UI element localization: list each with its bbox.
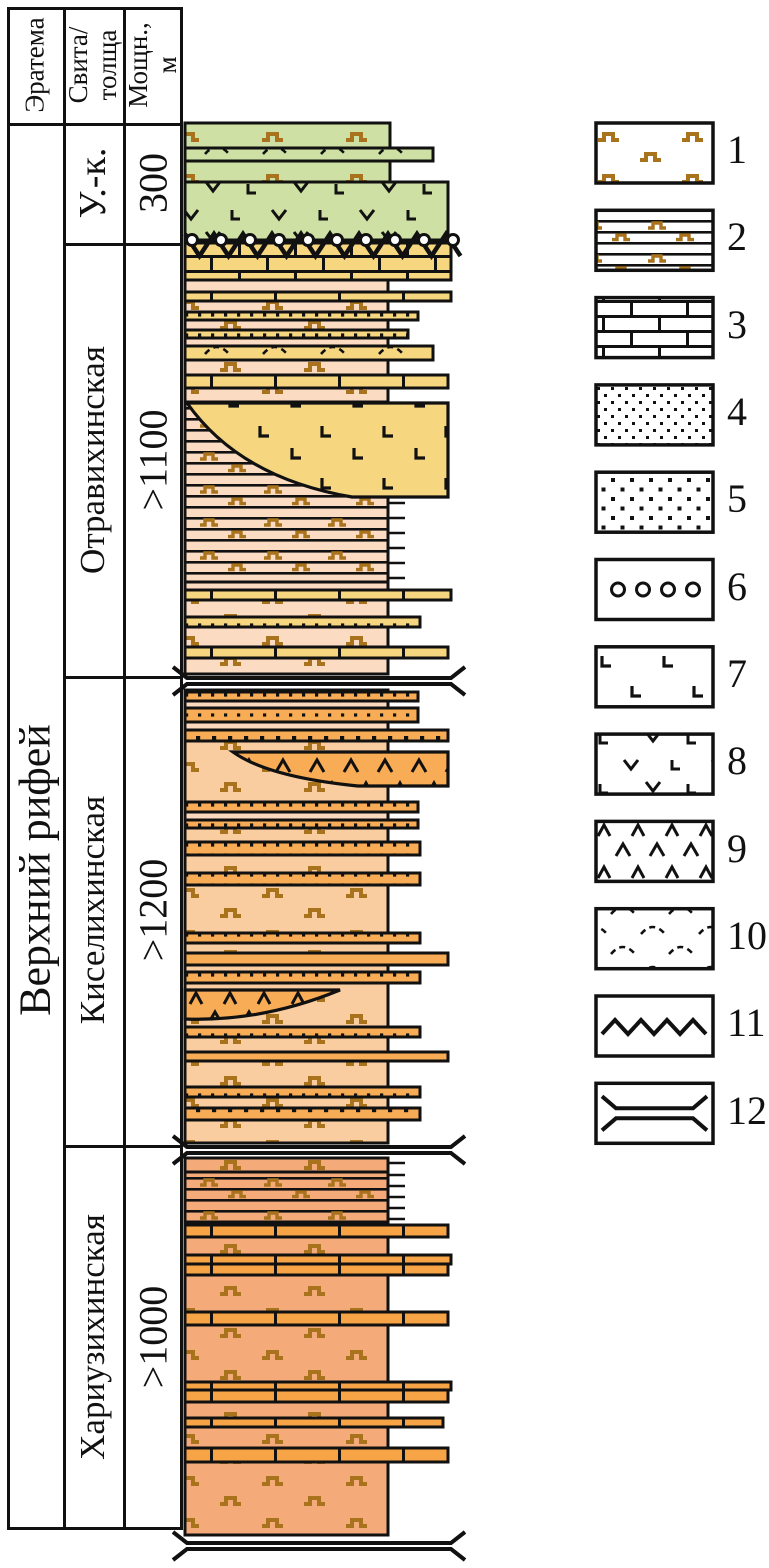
legend-number-11: 11 [727, 1001, 769, 1045]
legend-number-12: 12 [727, 1089, 769, 1133]
suite-otravikhinskaya: Отравихинская [73, 346, 113, 574]
era-label: Верхний рифей [10, 724, 61, 1016]
header-thickness-line1: Мощн., [124, 22, 153, 108]
table-vline-2 [123, 10, 126, 1527]
suite-kiselikhinskaya: Киселихинская [73, 796, 113, 1024]
table-header-line [10, 123, 180, 126]
suite-uk: У.-к. [71, 148, 115, 219]
legend-number-5: 5 [727, 477, 769, 521]
legend-number-1: 1 [727, 128, 769, 172]
thickness-kiselikhinskaya: >1200 [130, 859, 177, 962]
table-row-line-1 [63, 243, 180, 246]
suite-khariuzikhinskaya: Хариузихинская [73, 1214, 113, 1460]
header-suite-line1: Свита/ [64, 27, 93, 104]
thickness-uk: 300 [130, 153, 177, 213]
header-suite-line2: толща [93, 27, 122, 104]
header-suite: Свита/ толща [64, 27, 122, 104]
legend-number-7: 7 [727, 652, 769, 696]
legend-number-2: 2 [727, 215, 769, 259]
header-thickness: Мощн., м [124, 22, 182, 108]
table-row-line-2 [63, 676, 180, 679]
legend-number-8: 8 [727, 739, 769, 783]
table-vline-1 [63, 10, 66, 1527]
legend-number-6: 6 [727, 565, 769, 609]
thickness-khariuzikhinskaya: >1000 [130, 1286, 177, 1389]
header-thickness-line2: м [153, 22, 182, 108]
legend-number-10: 10 [727, 914, 769, 958]
table-row-line-3 [63, 1145, 180, 1148]
legend-number-9: 9 [727, 827, 769, 871]
legend-number-4: 4 [727, 390, 769, 434]
header-eratema: Эратема [21, 17, 50, 112]
thickness-otravikhinskaya: >1100 [130, 409, 177, 510]
legend-number-3: 3 [727, 303, 769, 347]
stratigraphic-column-figure: Эратема Свита/ толща Мощн., м Верхний ри… [0, 0, 769, 1568]
